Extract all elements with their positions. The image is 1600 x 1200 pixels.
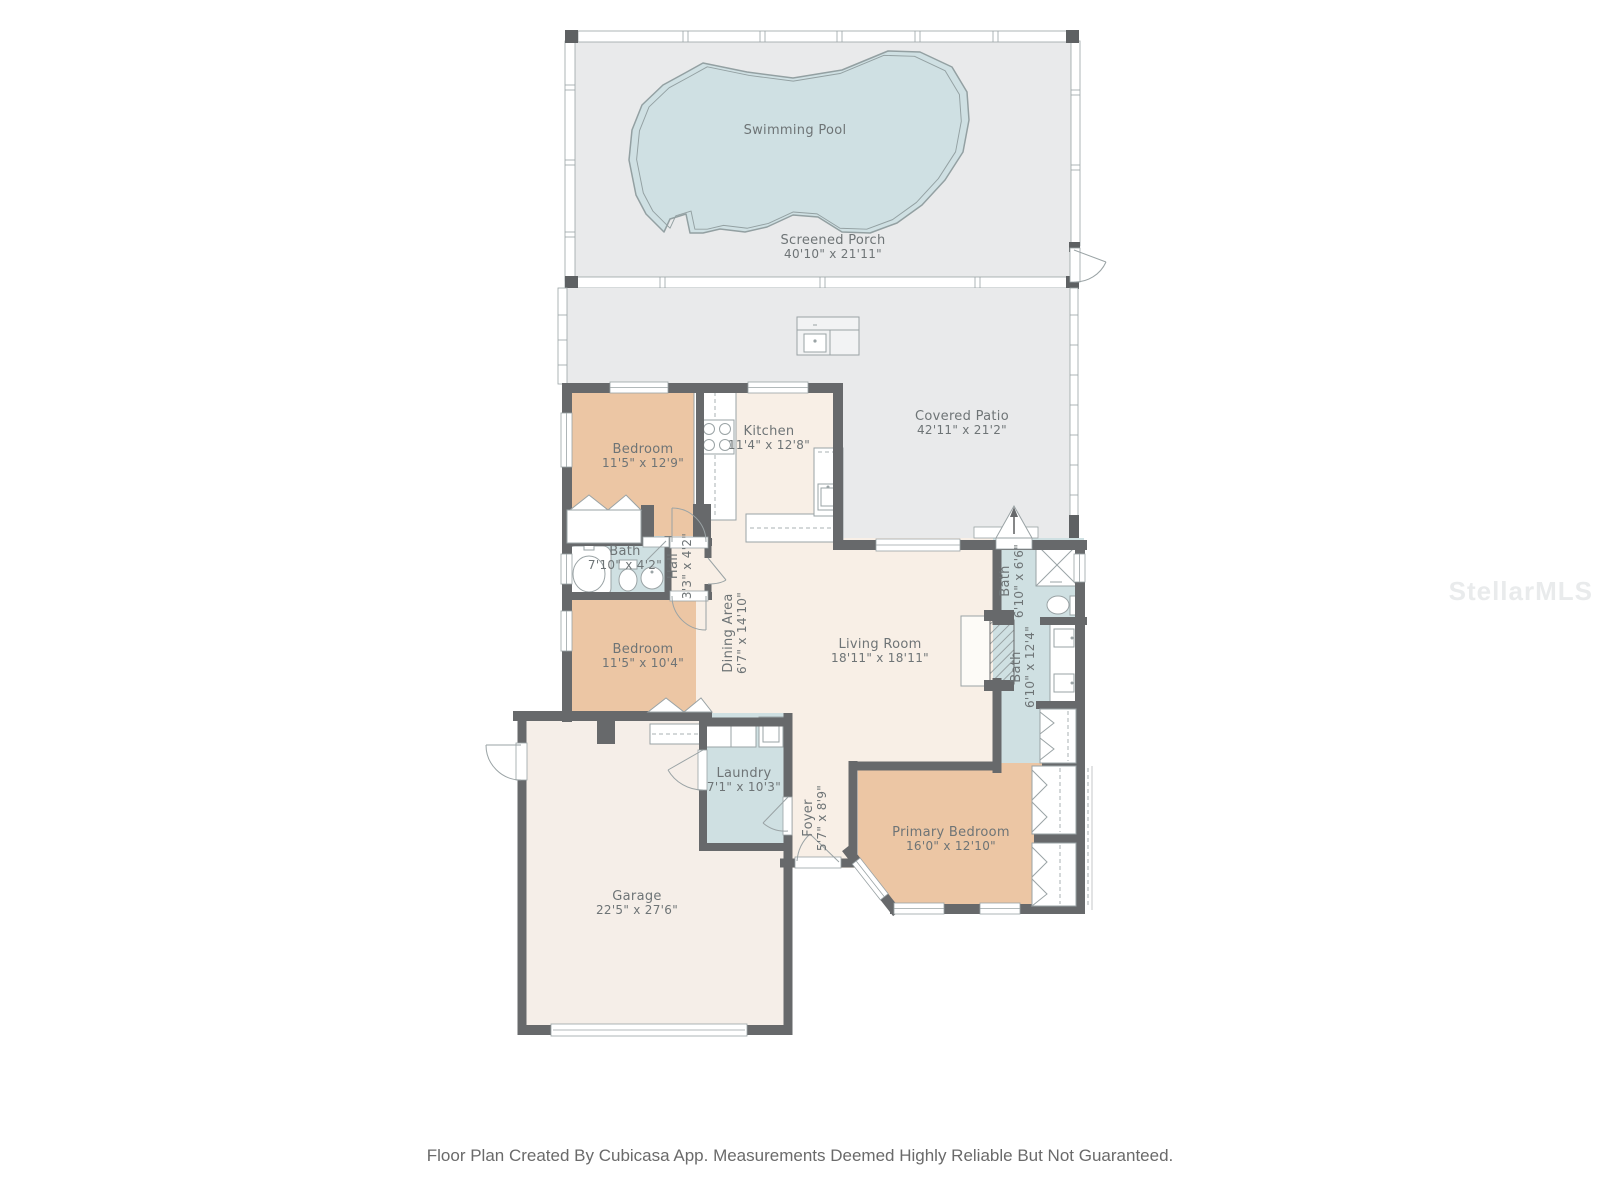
room-label-bedroom2: Bedroom [613, 642, 674, 657]
bath3-vanity [1050, 623, 1077, 703]
room-label-dining-group: Dining Area 6'7" x 14'10" [721, 592, 749, 674]
room-dims-foyer: 5'7" x 8'9" [815, 785, 829, 851]
window [894, 903, 944, 914]
room-label-screened-porch: Screened Porch [780, 233, 885, 248]
garage-closet [650, 724, 700, 744]
room-dims-hall: 3'3" x 4'2" [680, 533, 694, 599]
room-dims-kitchen: 11'4" x 12'8" [728, 438, 810, 452]
window [610, 382, 668, 393]
footer-disclaimer: Floor Plan Created By Cubicasa App. Meas… [427, 1146, 1174, 1165]
garage-door [551, 1024, 747, 1036]
porch-post [1066, 30, 1079, 43]
room-label-living: Living Room [838, 637, 921, 652]
porch-post [565, 30, 578, 43]
room-label-bath1: Bath [609, 544, 640, 559]
shower-icon [1036, 544, 1078, 586]
room-dims-bedroom1: 11'5" x 12'9" [602, 456, 684, 470]
room-dims-bath3: 6'10" x 12'4" [1023, 626, 1037, 708]
room-label-dining: Dining Area [721, 593, 736, 672]
garage-side-door [486, 743, 527, 780]
floor-plan-page: Swimming Pool Screened Porch 40'10" x 21… [0, 0, 1600, 1200]
room-label-garage: Garage [612, 889, 661, 904]
room-dims-covered-patio: 42'11" x 21'2" [917, 423, 1007, 437]
watermark: StellarMLS [1449, 576, 1593, 606]
swimming-pool-shape [629, 51, 969, 233]
hall-bath-closet [1040, 709, 1076, 763]
room-dims-garage: 22'5" x 27'6" [596, 903, 678, 917]
room-label-bath2: Bath [998, 565, 1013, 596]
room-label-swimming-pool: Swimming Pool [744, 123, 847, 138]
wall-stub [1034, 834, 1084, 843]
room-label-kitchen: Kitchen [744, 424, 795, 439]
room-label-bath3: Bath [1009, 651, 1024, 682]
room-label-primary-bedroom: Primary Bedroom [892, 825, 1010, 840]
room-label-covered-patio: Covered Patio [915, 409, 1009, 424]
window [561, 413, 572, 467]
window [561, 554, 572, 584]
porch-screen-door [1070, 248, 1106, 282]
room-label-foyer: Foyer [801, 799, 816, 837]
room-dims-dining: 6'7" x 14'10" [735, 592, 749, 674]
window [980, 903, 1020, 914]
floor-plan-canvas: Swimming Pool Screened Porch 40'10" x 21… [0, 0, 1600, 1200]
room-dims-bath2: 6'10" x 6'6" [1012, 544, 1026, 618]
window [748, 382, 808, 393]
wall-stub [597, 716, 615, 744]
room-label-bedroom1: Bedroom [613, 442, 674, 457]
outdoor-kitchen-island [797, 317, 859, 355]
room-dims-bath1: 7'10" x 4'2" [588, 558, 662, 572]
room-dims-primary-bedroom: 16'0" x 12'10" [906, 839, 996, 853]
room-label-laundry: Laundry [716, 766, 771, 781]
room-dims-screened-porch: 40'10" x 21'11" [784, 247, 882, 261]
window [561, 611, 572, 651]
room-dims-bedroom2: 11'5" x 10'4" [602, 656, 684, 670]
toilet-icon [1047, 596, 1079, 615]
room-label-hall: Hall [666, 553, 681, 579]
island-sink-icon [813, 339, 816, 342]
window [1074, 554, 1085, 582]
porch-post [565, 276, 578, 289]
window [876, 539, 960, 551]
room-dims-living: 18'11" x 18'11" [831, 651, 929, 665]
room-dims-laundry: 7'1" x 10'3" [707, 780, 781, 794]
